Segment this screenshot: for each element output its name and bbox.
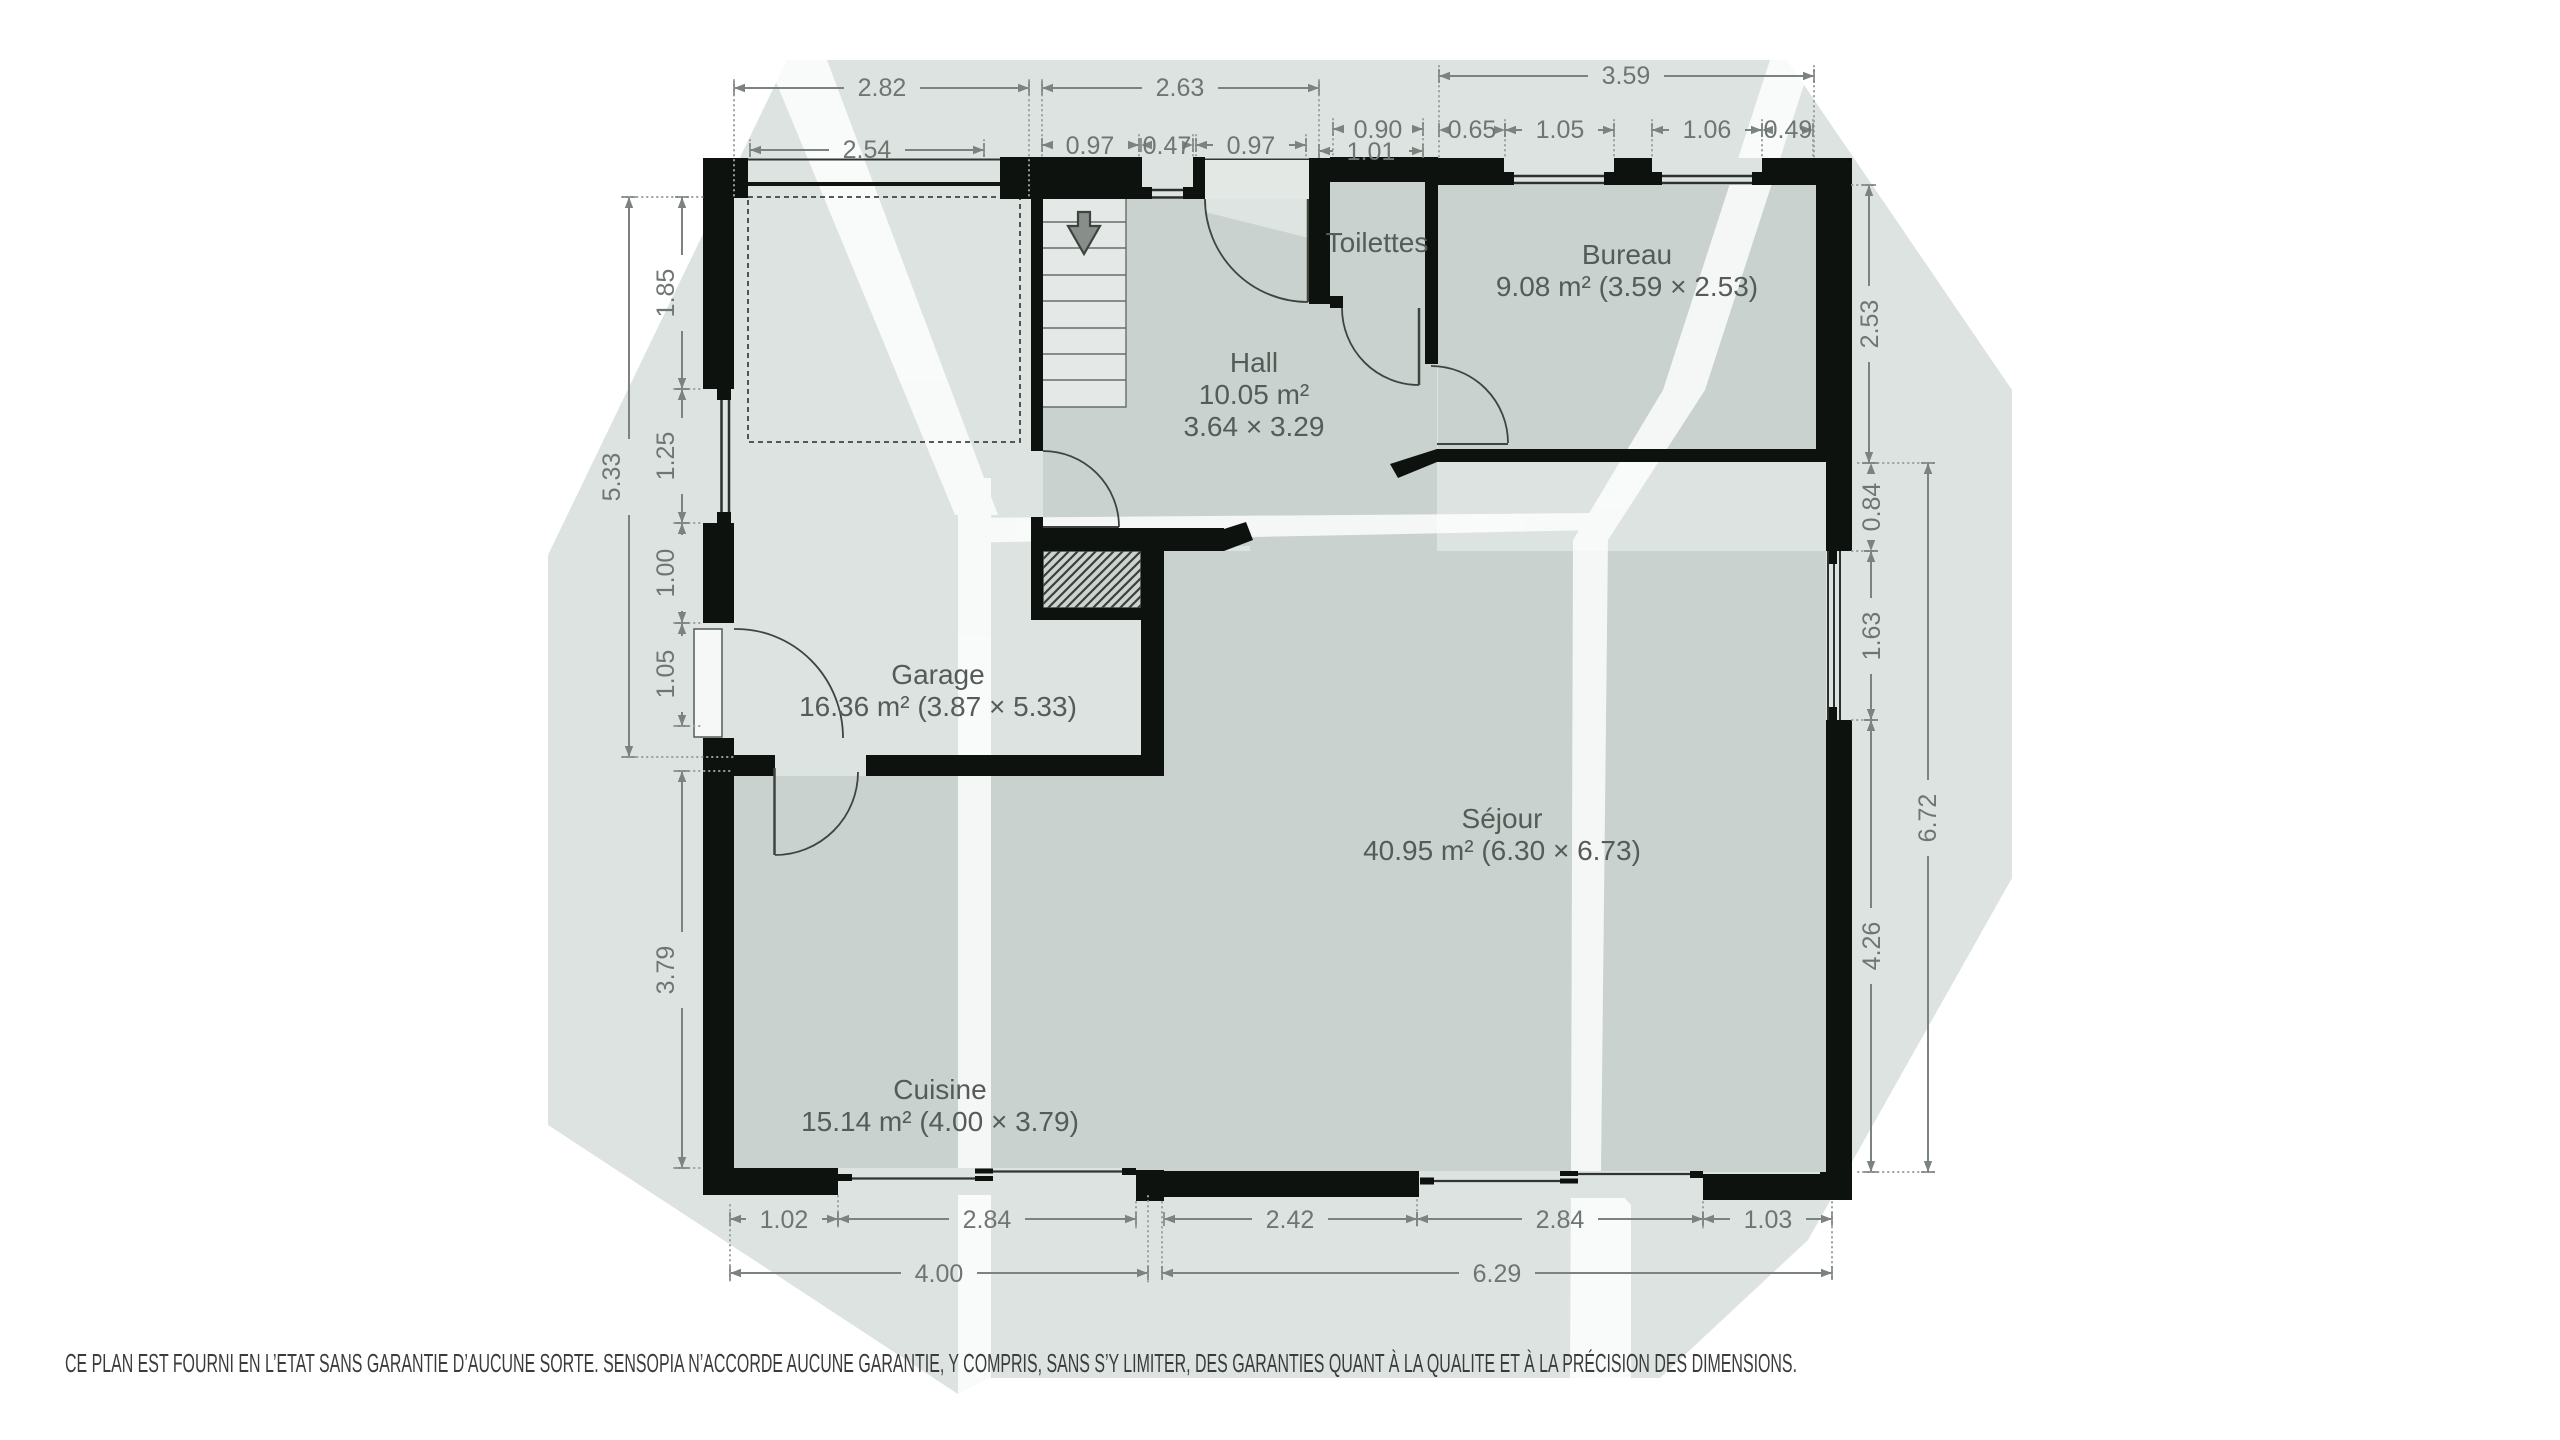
svg-text:6.72: 6.72 [1914, 794, 1942, 843]
svg-text:2.53: 2.53 [1856, 300, 1884, 349]
svg-text:2.54: 2.54 [843, 136, 892, 164]
svg-text:Garage: Garage [891, 659, 984, 690]
svg-text:0.84: 0.84 [1858, 483, 1886, 532]
svg-text:10.05 m²: 10.05 m² [1199, 379, 1310, 410]
svg-text:1.06: 1.06 [1683, 116, 1732, 144]
svg-text:9.08 m² (3.59 × 2.53): 9.08 m² (3.59 × 2.53) [1496, 271, 1758, 302]
svg-text:1.85: 1.85 [652, 269, 680, 318]
svg-text:2.84: 2.84 [1536, 1206, 1585, 1234]
svg-text:4.26: 4.26 [1858, 922, 1886, 971]
svg-text:3.59: 3.59 [1602, 62, 1651, 90]
svg-text:0.47: 0.47 [1143, 132, 1192, 160]
svg-text:1.03: 1.03 [1744, 1206, 1793, 1234]
svg-text:0.65: 0.65 [1448, 116, 1497, 144]
svg-text:Hall: Hall [1230, 347, 1278, 378]
svg-text:0.49: 0.49 [1764, 116, 1813, 144]
svg-text:2.82: 2.82 [858, 74, 907, 102]
svg-text:4.00: 4.00 [915, 1260, 964, 1288]
svg-text:5.33: 5.33 [598, 453, 626, 502]
svg-text:2.42: 2.42 [1266, 1206, 1315, 1234]
svg-text:1.02: 1.02 [760, 1206, 809, 1234]
svg-text:Cuisine: Cuisine [893, 1074, 986, 1105]
svg-text:2.63: 2.63 [1156, 74, 1205, 102]
svg-text:0.97: 0.97 [1227, 132, 1276, 160]
svg-text:1.05: 1.05 [652, 650, 680, 699]
svg-text:3.64 × 3.29: 3.64 × 3.29 [1184, 411, 1325, 442]
svg-text:16.36 m² (3.87 × 5.33): 16.36 m² (3.87 × 5.33) [799, 691, 1077, 722]
svg-text:3.79: 3.79 [652, 946, 680, 995]
svg-text:1.01: 1.01 [1347, 138, 1396, 166]
svg-text:Bureau: Bureau [1582, 239, 1672, 270]
svg-text:1.25: 1.25 [652, 432, 680, 481]
svg-text:1.63: 1.63 [1858, 612, 1886, 661]
svg-text:6.29: 6.29 [1473, 1260, 1522, 1288]
svg-text:1.00: 1.00 [652, 549, 680, 598]
svg-text:2.84: 2.84 [963, 1206, 1012, 1234]
svg-text:0.97: 0.97 [1066, 132, 1115, 160]
svg-text:1.05: 1.05 [1536, 116, 1585, 144]
svg-text:CE PLAN EST FOURNI EN L’ETAT S: CE PLAN EST FOURNI EN L’ETAT SANS GARANT… [65, 1348, 1797, 1378]
svg-text:40.95 m² (6.30 × 6.73): 40.95 m² (6.30 × 6.73) [1363, 835, 1641, 866]
svg-text:15.14 m² (4.00 × 3.79): 15.14 m² (4.00 × 3.79) [801, 1106, 1079, 1137]
svg-text:Séjour: Séjour [1462, 803, 1543, 834]
svg-text:Toilettes: Toilettes [1326, 227, 1429, 258]
